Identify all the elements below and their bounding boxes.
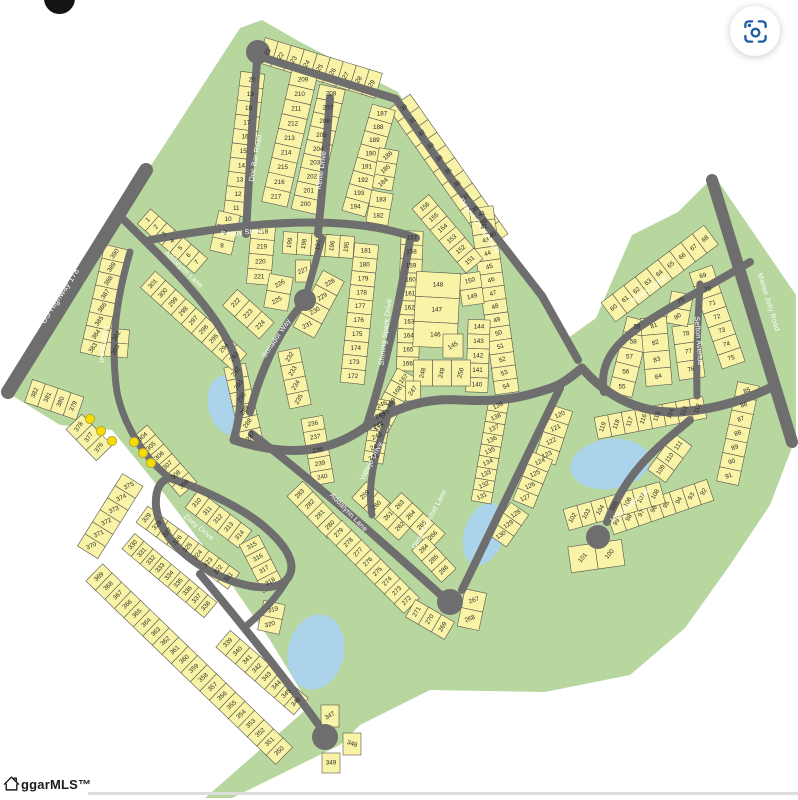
lot-number: 189 xyxy=(369,137,380,144)
lot-number: 161 xyxy=(405,290,416,297)
lot-number: 221 xyxy=(254,273,265,280)
lot-number: 175 xyxy=(352,331,363,338)
lot-number: 194 xyxy=(350,203,361,210)
lot-number: 173 xyxy=(349,359,360,366)
lot-number: 59 xyxy=(633,323,641,330)
lot-number: 146 xyxy=(430,331,441,338)
lot-number: 11 xyxy=(233,205,240,212)
lot-number: 14 xyxy=(238,162,246,169)
lot-number: 172 xyxy=(348,373,359,380)
lot-number: 158 xyxy=(406,248,417,255)
lot-number: 160 xyxy=(405,276,416,283)
lot-number: 164 xyxy=(403,332,414,339)
lot-number: 213 xyxy=(284,135,295,142)
lot-number: 182 xyxy=(373,212,384,219)
lot-number: 219 xyxy=(256,243,267,250)
lot-number: 205 xyxy=(316,132,327,139)
lot-number: 12 xyxy=(234,191,242,198)
lot-number: 349 xyxy=(326,760,337,767)
lot-number: 159 xyxy=(406,262,417,269)
lot-number: 215 xyxy=(277,164,288,171)
lot-number: 166 xyxy=(402,360,413,367)
house-logo-icon xyxy=(3,775,20,792)
lot-number: 207 xyxy=(323,104,334,111)
lot-number: 55 xyxy=(618,384,626,391)
lot-number: 20 xyxy=(248,77,256,84)
cul-de-sac xyxy=(586,525,610,549)
lot-number: 214 xyxy=(281,150,292,157)
highlighted-lot-dot xyxy=(85,414,94,423)
lot-number: 57 xyxy=(626,353,634,360)
bottom-divider xyxy=(88,792,798,795)
lot-number: 140 xyxy=(472,381,483,388)
lot-number: 18 xyxy=(245,105,253,112)
lot-number: 216 xyxy=(274,179,285,186)
lot-number: 143 xyxy=(473,338,484,345)
plat-map: 2122232425262728293031323334353637383940… xyxy=(0,0,798,800)
lot-number: 188 xyxy=(373,124,384,131)
lot-number: 217 xyxy=(271,193,282,200)
highlighted-lot-dot xyxy=(96,426,105,435)
lot-number: 162 xyxy=(404,304,415,311)
cul-de-sac xyxy=(437,589,463,615)
lot-number: 190 xyxy=(365,150,376,157)
lot-number: 165 xyxy=(403,346,414,353)
highlighted-lot-dot xyxy=(129,437,138,446)
lot-number: 193 xyxy=(354,190,365,197)
highlighted-lot-dot xyxy=(146,458,155,467)
lot-number: 147 xyxy=(431,306,442,313)
lot-number: 181 xyxy=(361,248,372,255)
lot-number: 191 xyxy=(362,164,373,171)
lot-number: 141 xyxy=(472,367,483,374)
lot-number: 13 xyxy=(236,177,244,184)
lot-number: 179 xyxy=(358,275,369,282)
lot-number: 201 xyxy=(303,187,314,194)
lot-number: 163 xyxy=(404,318,415,325)
lot-number: 17 xyxy=(243,119,251,126)
lot-number: 148 xyxy=(433,282,444,289)
lot-number: 183 xyxy=(376,197,387,204)
lot-number: 209 xyxy=(298,77,309,84)
mls-watermark: ggarMLS™ xyxy=(3,775,91,792)
lot-number: 192 xyxy=(358,177,369,184)
highlighted-lot-dot xyxy=(107,436,116,445)
lot-number: 206 xyxy=(319,118,330,125)
camera-scan-icon xyxy=(742,18,769,45)
lot-number: 178 xyxy=(356,289,367,296)
highlighted-lot-dot xyxy=(138,448,147,457)
lot-number: 19 xyxy=(247,91,255,98)
lot-number: 212 xyxy=(288,120,299,127)
scan-button[interactable] xyxy=(730,6,780,56)
lot-number: 200 xyxy=(300,201,311,208)
lot-number: 16 xyxy=(241,134,249,141)
cul-de-sac xyxy=(312,724,338,750)
lot-number: 211 xyxy=(291,106,302,113)
lot-number: 187 xyxy=(377,111,388,118)
lot-number: 220 xyxy=(255,258,266,265)
lot-number: 10 xyxy=(225,216,233,223)
lot-number: 56 xyxy=(622,368,630,375)
lot-number: 177 xyxy=(355,303,366,310)
lot-number: 58 xyxy=(630,338,638,345)
lot-number: 144 xyxy=(474,324,485,331)
lot-number: 180 xyxy=(359,261,370,268)
lot-number: 15 xyxy=(240,148,248,155)
plat-map-viewer: 2122232425262728293031323334353637383940… xyxy=(0,0,798,800)
watermark-label: ggarMLS™ xyxy=(21,777,91,792)
lot-number: 208 xyxy=(326,91,337,98)
lot-number: 176 xyxy=(353,317,364,324)
lot-number: 8 xyxy=(220,243,224,250)
lot-number: 210 xyxy=(294,91,305,98)
lot-number: 174 xyxy=(350,345,361,352)
lot-number: 157 xyxy=(407,235,418,242)
lot-number: 142 xyxy=(473,352,484,359)
